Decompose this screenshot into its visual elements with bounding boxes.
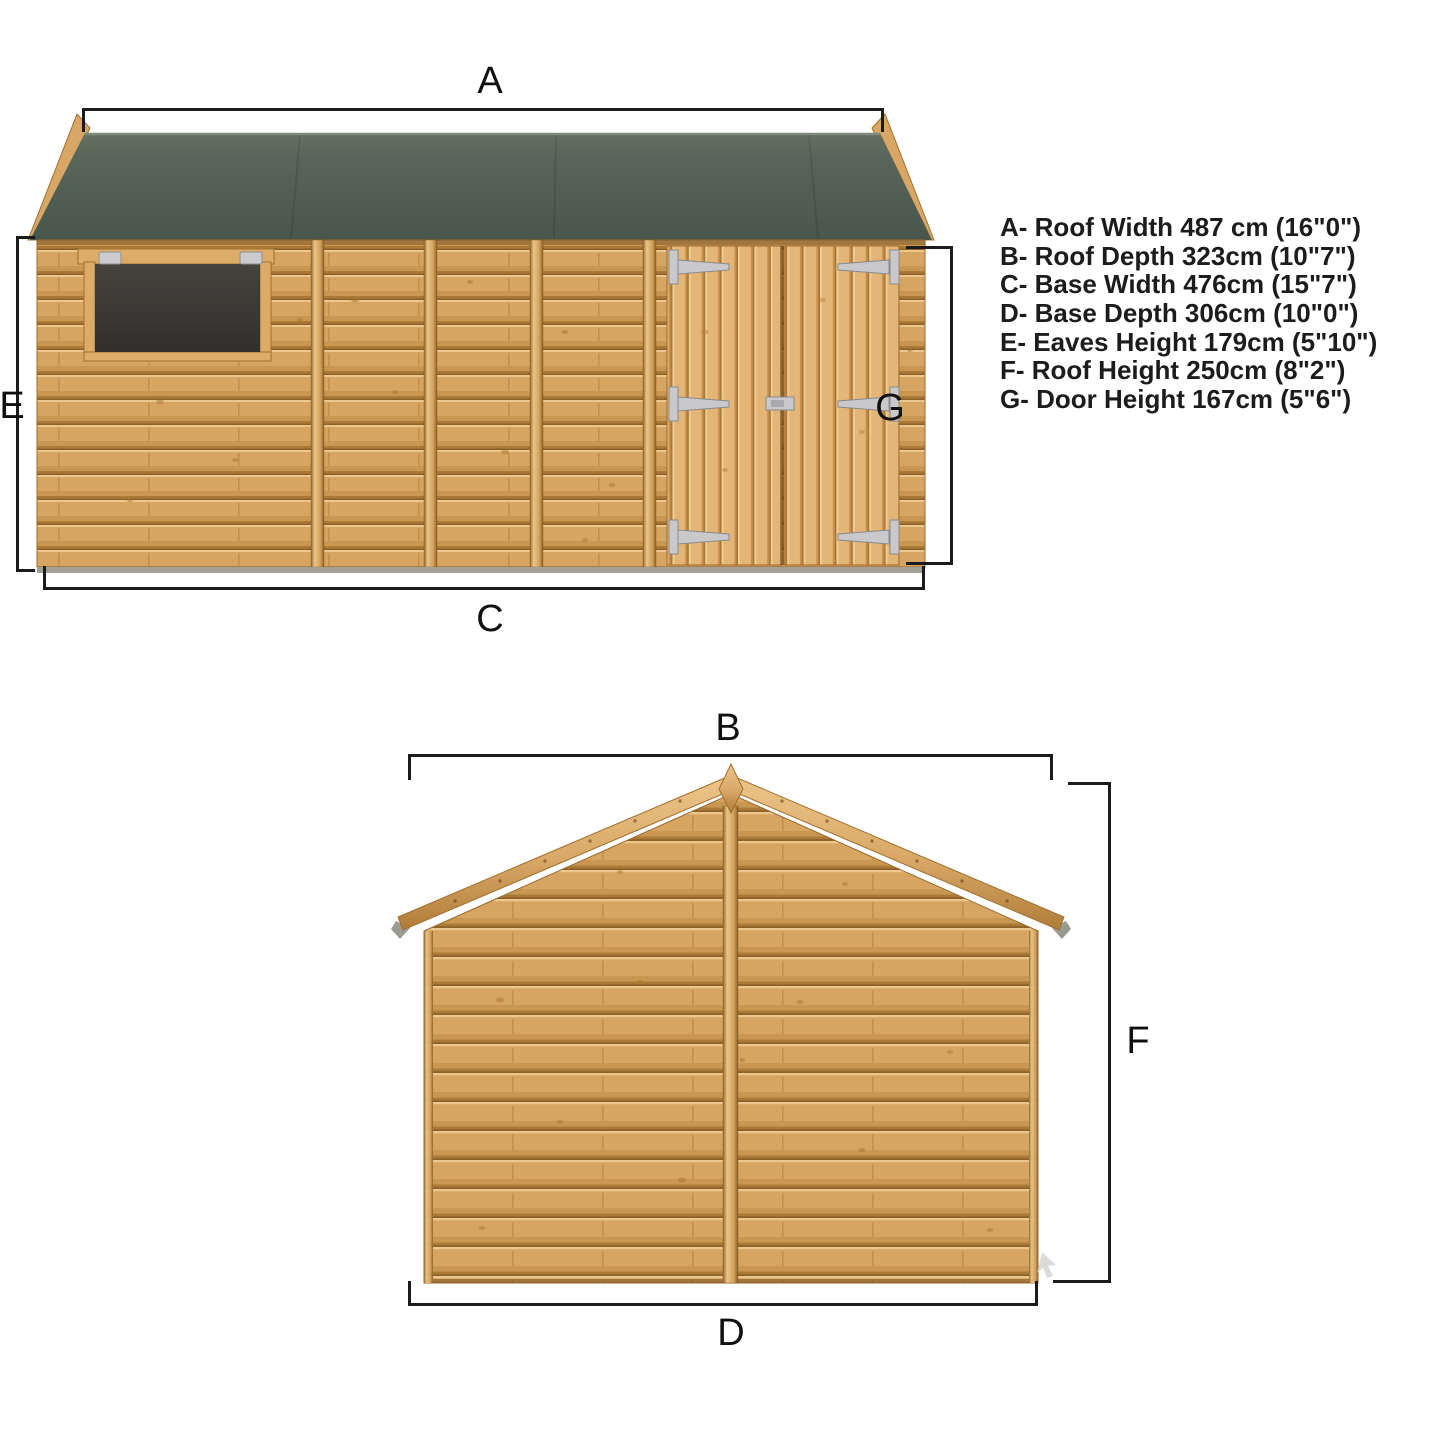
dim-line-d bbox=[408, 1303, 1038, 1306]
window-glass bbox=[95, 264, 260, 352]
dim-label-d: D bbox=[691, 1314, 771, 1352]
legend-item: D- Base Depth 306cm (10"0") bbox=[1000, 299, 1377, 328]
corner-trim bbox=[424, 931, 433, 1283]
dim-line-g bbox=[950, 246, 953, 565]
dim-label-f: F bbox=[1118, 1022, 1158, 1060]
dim-line-d-tick bbox=[408, 1281, 411, 1305]
dim-label-b: B bbox=[688, 709, 768, 747]
center-batten bbox=[723, 806, 738, 1283]
dim-line-d-tick bbox=[1035, 1281, 1038, 1305]
corner-trim bbox=[1029, 931, 1038, 1283]
dim-line-c bbox=[43, 587, 925, 590]
dim-line-e-tick bbox=[16, 236, 35, 239]
dim-line-e-tick bbox=[16, 569, 35, 572]
dim-line-f-tick bbox=[1053, 1280, 1111, 1283]
legend-item: E- Eaves Height 179cm (5"10") bbox=[1000, 328, 1377, 357]
dim-line-g-tick bbox=[906, 246, 953, 249]
window-bracket-icon bbox=[240, 252, 262, 264]
dim-label-e: E bbox=[0, 387, 27, 425]
dim-label-g: G bbox=[870, 389, 910, 427]
legend-item: F- Roof Height 250cm (8"2") bbox=[1000, 356, 1377, 385]
dim-line-g-tick bbox=[906, 562, 953, 565]
legend-item: B- Roof Depth 323cm (10"7") bbox=[1000, 242, 1377, 271]
watermark-arrow bbox=[1037, 1252, 1056, 1278]
dimension-legend: A- Roof Width 487 cm (16"0") B- Roof Dep… bbox=[1000, 213, 1377, 414]
dim-line-f-tick bbox=[1068, 782, 1111, 785]
double-doors bbox=[667, 246, 899, 565]
side-elevation-view bbox=[375, 755, 1075, 1295]
front-roof bbox=[30, 133, 932, 240]
dim-line-b-tick bbox=[408, 754, 411, 780]
dim-line-c-tick bbox=[43, 566, 46, 590]
legend-item: G- Door Height 167cm (5"6") bbox=[1000, 385, 1377, 414]
legend-item: A- Roof Width 487 cm (16"0") bbox=[1000, 213, 1377, 242]
window-bracket-icon bbox=[99, 252, 121, 264]
front-elevation-view bbox=[20, 105, 965, 575]
base-rail bbox=[37, 567, 925, 573]
dim-line-a-tick bbox=[82, 108, 85, 132]
dim-line-f bbox=[1108, 782, 1111, 1283]
dim-line-c-tick bbox=[922, 566, 925, 590]
dim-line-a bbox=[82, 108, 884, 111]
dim-label-c: C bbox=[450, 600, 530, 638]
dim-line-a-tick bbox=[881, 108, 884, 132]
dim-line-b-tick bbox=[1050, 754, 1053, 780]
window bbox=[78, 249, 274, 361]
dim-line-b bbox=[408, 754, 1053, 757]
shed-dimension-diagram: A E G C A- Roof Width 487 cm (16"0") B- … bbox=[0, 0, 1445, 1445]
dim-label-a: A bbox=[450, 62, 530, 100]
door-latch bbox=[766, 397, 794, 410]
legend-item: C- Base Width 476cm (15"7") bbox=[1000, 270, 1377, 299]
